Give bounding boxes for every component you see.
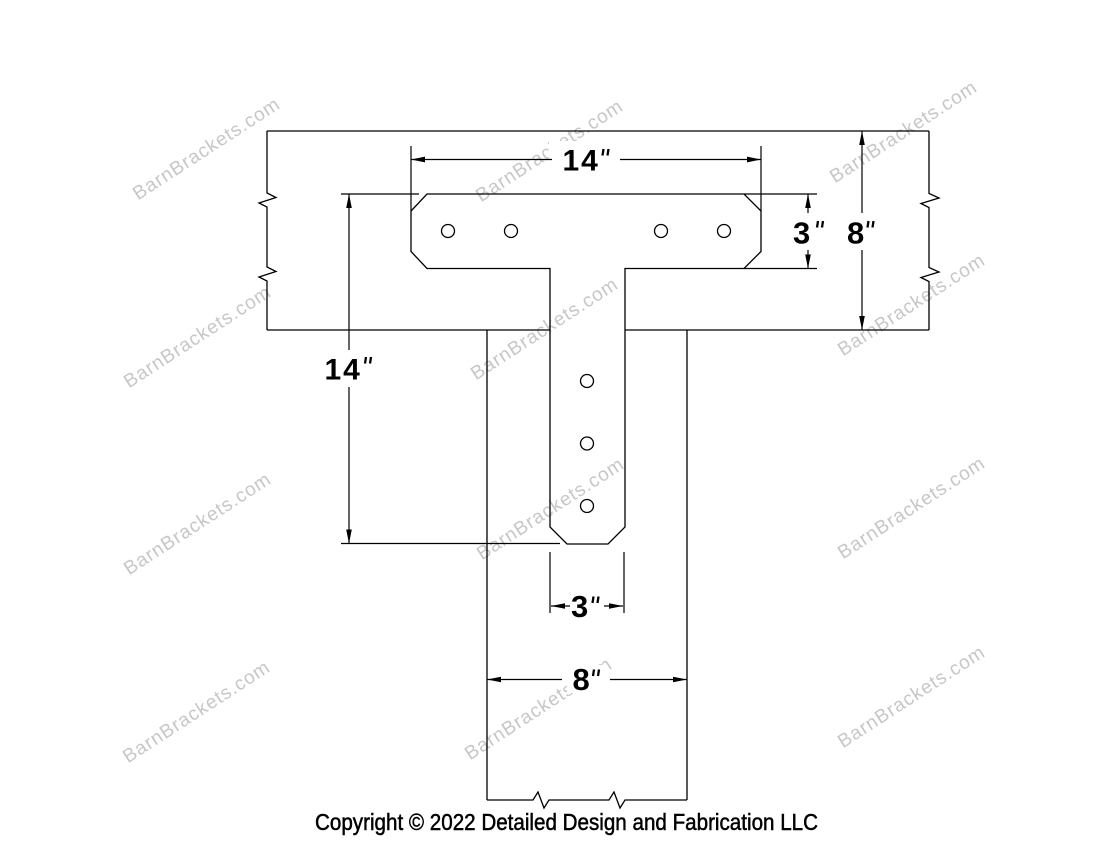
svg-text:8: 8: [847, 216, 864, 251]
svg-text:14: 14: [563, 145, 600, 178]
svg-text:Copyright © 2022 Detailed Desi: Copyright © 2022 Detailed Design and Fab…: [315, 809, 818, 835]
svg-text:3: 3: [571, 589, 588, 624]
svg-text:14: 14: [325, 353, 362, 386]
svg-text:3: 3: [793, 216, 810, 251]
svg-text:8: 8: [573, 662, 590, 697]
